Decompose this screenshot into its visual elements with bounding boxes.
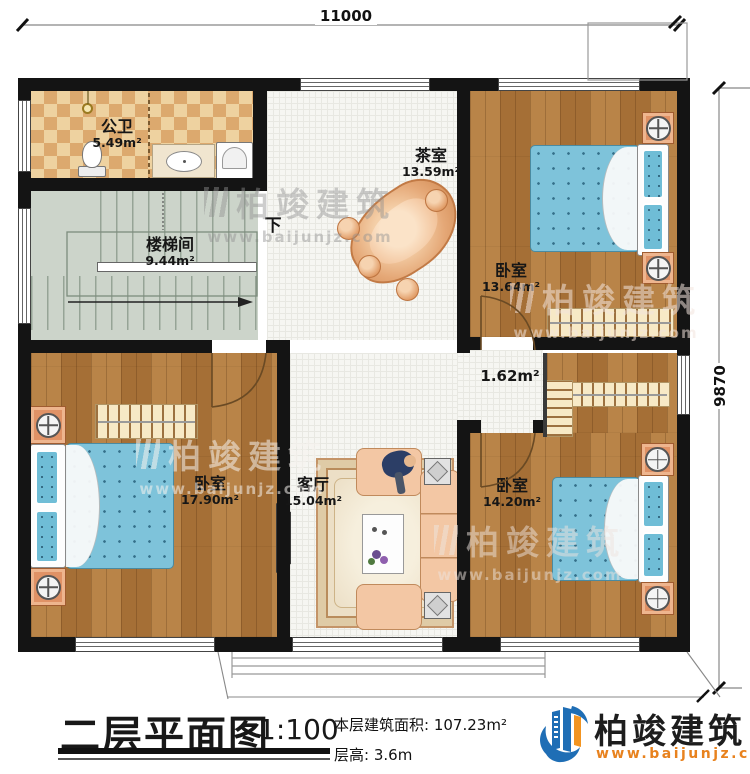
wall-bedroomBR-left [457, 433, 470, 652]
armchair-bottom [356, 584, 422, 630]
room-name: 公卫 [92, 119, 141, 136]
room-name: 卧室 [181, 476, 239, 493]
room-name: 楼梯间 [145, 237, 194, 254]
nightstand [641, 443, 674, 476]
dim-tick [713, 82, 725, 94]
side-table [424, 458, 451, 485]
wall-tearoom-right [457, 91, 470, 353]
lamp-icon [36, 413, 61, 438]
label-bedroom-topright: 卧室 13.64m² [482, 263, 540, 293]
window-bedroomTR-top [498, 78, 640, 91]
nightstand [642, 252, 674, 284]
stair-down-label: 下 [265, 218, 282, 236]
sofa-right [420, 470, 460, 602]
dim-top-value: 11000 [315, 7, 377, 25]
title-underline-thick [58, 748, 330, 754]
floor-area-line: 本层建筑面积: 107.23m² [334, 714, 507, 735]
side-table [424, 592, 451, 619]
lamp-icon [646, 116, 671, 141]
nightstand [30, 406, 66, 444]
dim-right-value: 9870 [711, 363, 729, 409]
label-bathroom: 公卫 5.49m² [92, 119, 141, 149]
dim-tick [17, 19, 28, 31]
pillow [642, 149, 664, 199]
wall-bathroom-bottom [18, 178, 267, 191]
brand-logo-icon [536, 700, 590, 766]
pillow [35, 510, 59, 563]
porch-steps [232, 652, 545, 678]
room-name: 卧室 [482, 263, 540, 280]
floor-height-line: 层高: 3.6m [334, 744, 412, 765]
table-decor-icon [427, 461, 448, 482]
coffee-table [362, 514, 404, 574]
cup [382, 530, 387, 535]
title-block: 二层平面图 1:100 本层建筑面积: 107.23m² 层高: 3.6m 柏竣… [0, 700, 750, 774]
floor-area-value: 107.23m² [434, 716, 507, 734]
dim-tick [713, 682, 725, 694]
sink-drain [183, 160, 186, 163]
down-text: 下 [265, 218, 282, 236]
cup [372, 527, 377, 532]
washing-machine-drum [222, 147, 247, 169]
stool [396, 278, 419, 301]
wall-bathroom-right [253, 91, 267, 191]
lamp-icon [645, 447, 670, 472]
window-stairwell-left [18, 208, 31, 324]
window-bathroom-left [18, 100, 31, 172]
room-area: 1.62m² [480, 369, 539, 385]
lamp-icon [645, 586, 670, 611]
dim-tick [669, 16, 681, 28]
label-nook: 1.62m² [480, 369, 539, 385]
wall-bedroomTR-bottom-a [457, 337, 481, 350]
window-bedroomBL-bottom [75, 637, 215, 652]
canopy-outline [588, 23, 687, 80]
room-area: 5.49m² [92, 136, 141, 149]
dim-tick [674, 19, 685, 31]
window-bedroomBR-bottom [500, 637, 640, 652]
wardrobe-bottomleft [95, 404, 198, 439]
table-decor-icon [427, 595, 448, 616]
wall-bedroomBL-top-a [18, 340, 212, 353]
person-head [404, 455, 416, 467]
nightstand [642, 112, 674, 144]
wall-bedroomTR-bottom-b [533, 337, 677, 350]
pillow [35, 450, 59, 505]
floorplan-page: { "plan": { "dim_top": "11000", "dim_rig… [0, 0, 750, 774]
ceiling-lamp [82, 103, 93, 114]
leader-diagonal-right [687, 652, 720, 697]
label-bedroom-bottomright: 卧室 14.20m² [483, 478, 541, 508]
room-name: 客厅 [284, 477, 342, 494]
label-living: 客厅 15.04m² [284, 477, 342, 507]
window-tearoom-top [300, 78, 430, 91]
room-area: 14.20m² [483, 495, 541, 508]
stool [425, 189, 448, 212]
wall-nook-thin [543, 353, 547, 437]
label-tearoom: 茶室 13.59m² [402, 148, 460, 178]
stool [337, 217, 360, 240]
room-name: 卧室 [483, 478, 541, 495]
lamp-icon [36, 575, 61, 600]
wall-nook-bottom-b [533, 420, 543, 433]
room-area: 13.59m² [402, 165, 460, 178]
floor-height-label: 层高: [334, 746, 369, 764]
plan-scale: 1:100 [258, 713, 339, 746]
window-nook-right [677, 355, 690, 415]
room-area: 13.64m² [482, 280, 540, 293]
floor-area-label: 本层建筑面积: [334, 716, 429, 734]
window-living-bottom [292, 637, 443, 652]
label-bedroom-bottomleft: 卧室 17.90m² [181, 476, 239, 506]
flower-vase [380, 556, 388, 564]
pillow [642, 203, 664, 251]
nightstand [30, 568, 66, 606]
pillow [642, 532, 665, 578]
stair-treads-lower [31, 276, 257, 330]
title-underline-thin [58, 758, 330, 760]
label-stairwell: 楼梯间 9.44m² [145, 237, 194, 267]
brand-website: www.baijunjz.com [596, 746, 750, 762]
floor-height-value: 3.6m [374, 746, 412, 764]
room-area: 15.04m² [284, 494, 342, 507]
nightstand [641, 582, 674, 615]
linen-shelf [545, 380, 573, 437]
stool [358, 255, 381, 278]
pillow [642, 480, 665, 528]
lamp-icon [646, 256, 671, 281]
room-area: 17.90m² [181, 493, 239, 506]
wall-nook-bottom-a [457, 420, 481, 433]
flower-leaf [368, 558, 375, 565]
room-area: 9.44m² [145, 254, 194, 267]
wardrobe-topright [547, 308, 674, 337]
leader-diagonal-left [218, 652, 228, 699]
room-name: 茶室 [402, 148, 460, 165]
